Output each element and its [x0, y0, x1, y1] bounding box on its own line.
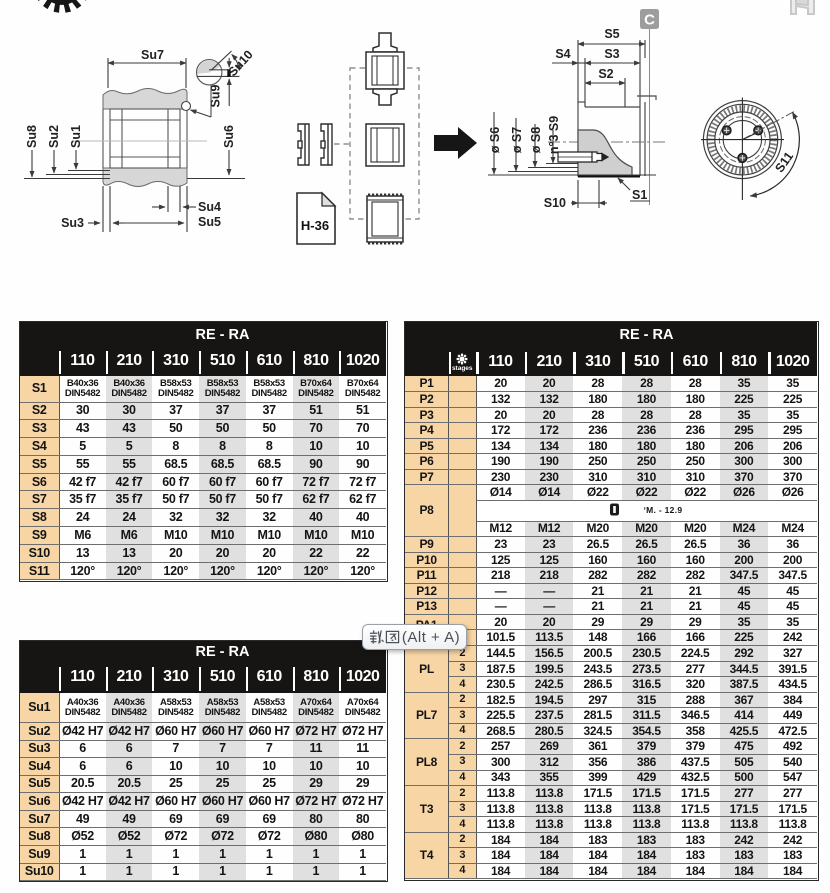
- svg-text:S10: S10: [544, 196, 566, 210]
- svg-text:Su4: Su4: [198, 200, 221, 214]
- svg-text:Su5: Su5: [198, 215, 221, 229]
- svg-text:n°3 S9: n°3 S9: [547, 116, 561, 154]
- svg-text:S2: S2: [598, 67, 613, 81]
- svg-text:Su7: Su7: [141, 48, 164, 62]
- svg-text:S4: S4: [555, 47, 570, 61]
- svg-text:Su8: Su8: [25, 125, 39, 148]
- svg-text:ø S7: ø S7: [510, 127, 524, 153]
- svg-text:Su6: Su6: [222, 125, 236, 148]
- svg-text:S1: S1: [632, 188, 647, 202]
- svg-text:Su3: Su3: [61, 216, 84, 230]
- svg-text:S3: S3: [604, 47, 619, 61]
- svg-text:S11: S11: [772, 149, 796, 175]
- svg-text:Su1: Su1: [69, 125, 83, 148]
- svg-text:ø S8: ø S8: [529, 127, 543, 153]
- svg-text:S5: S5: [604, 27, 619, 41]
- svg-text:ø S6: ø S6: [488, 127, 502, 153]
- svg-text:C: C: [644, 12, 655, 29]
- svg-text:Su2: Su2: [47, 125, 61, 148]
- svg-text:H-36: H-36: [301, 218, 329, 233]
